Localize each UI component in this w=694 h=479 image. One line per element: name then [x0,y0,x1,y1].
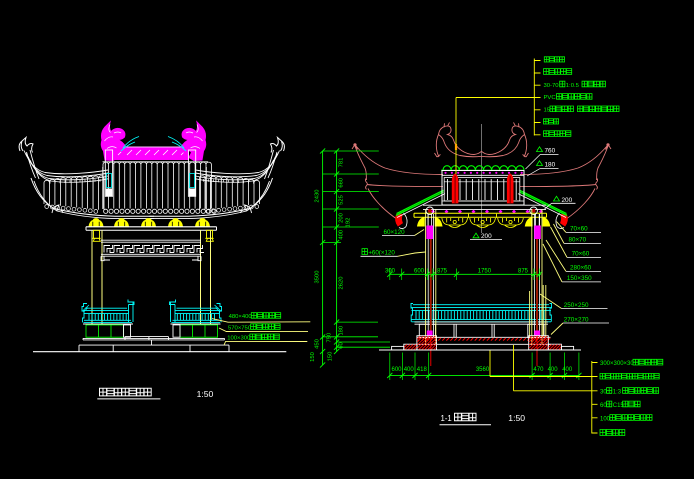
svg-text:150×350: 150×350 [567,275,592,282]
svg-text:80×70: 80×70 [569,237,587,244]
svg-text:400: 400 [404,367,415,373]
svg-text:1:50: 1:50 [508,413,525,423]
svg-text:150: 150 [310,352,316,362]
svg-text:70×60: 70×60 [572,251,590,258]
svg-text:200: 200 [339,213,345,223]
svg-text:1750: 1750 [478,268,492,274]
svg-text:781: 781 [339,158,345,168]
svg-text:60: 60 [339,342,345,348]
svg-text:1:50: 1:50 [197,389,214,399]
svg-text:470: 470 [533,367,544,373]
svg-text:300×300×30: 300×300×30 [600,361,634,367]
svg-text:600: 600 [414,268,425,274]
svg-text:400: 400 [562,367,573,373]
svg-text:760: 760 [545,148,556,155]
svg-text:750: 750 [326,333,332,343]
svg-text:70×60: 70×60 [570,226,588,233]
svg-text:270×270: 270×270 [564,316,589,323]
svg-text:3500: 3500 [315,271,321,284]
svg-text:1-1: 1-1 [441,414,452,423]
svg-text:60×120: 60×120 [384,229,406,236]
svg-text:2620: 2620 [339,277,345,290]
svg-text:30-70: 30-70 [544,83,560,89]
svg-text:100: 100 [600,416,611,422]
svg-text:180: 180 [545,162,556,169]
svg-text:1:0.5: 1:0.5 [566,83,580,89]
svg-text:570×750: 570×750 [228,325,252,331]
svg-text:875: 875 [518,268,529,274]
svg-text:180: 180 [339,326,345,336]
svg-text:PVC: PVC [544,95,557,101]
svg-text:300: 300 [385,268,396,274]
svg-text:250×250: 250×250 [564,302,589,309]
svg-text:100×300: 100×300 [227,336,251,342]
svg-text:600: 600 [391,367,402,373]
svg-text:200: 200 [481,233,492,240]
svg-text:150: 150 [328,352,334,362]
svg-text:192: 192 [346,218,352,228]
svg-text:660: 660 [339,178,345,188]
svg-text:400: 400 [548,367,559,373]
svg-text:480×400: 480×400 [229,314,253,320]
svg-text:418: 418 [417,367,428,373]
svg-text:280×60: 280×60 [570,265,592,272]
svg-text:400: 400 [339,230,345,240]
svg-text:450: 450 [315,339,321,349]
svg-text:+60(×120: +60(×120 [368,250,395,257]
svg-text:875: 875 [437,268,448,274]
svg-text:525: 525 [339,195,345,205]
svg-text:2430: 2430 [315,190,321,203]
svg-text:1:3: 1:3 [613,389,622,395]
svg-text:3560: 3560 [476,367,490,373]
